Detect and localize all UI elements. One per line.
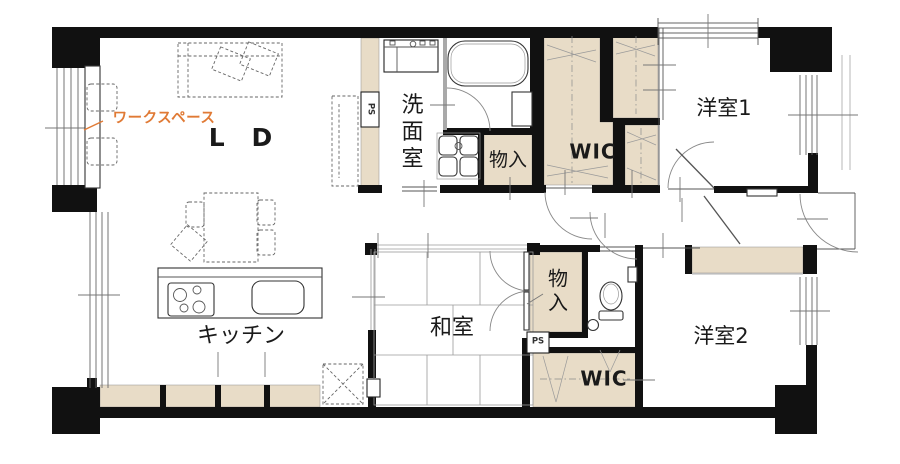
tv-board bbox=[332, 96, 358, 186]
meter-box bbox=[367, 379, 380, 397]
storage-fills bbox=[100, 33, 803, 407]
vanity-basin bbox=[437, 133, 480, 179]
label-washroom: 洗面室 bbox=[398, 93, 421, 174]
bathtub bbox=[448, 41, 532, 126]
label-living-dining: L D bbox=[209, 125, 281, 151]
bath-door-arc bbox=[447, 88, 490, 131]
refrigerator-space bbox=[323, 364, 363, 404]
wic-door-arc bbox=[545, 192, 592, 239]
dining-table bbox=[171, 193, 275, 262]
window-room1-top bbox=[658, 14, 758, 48]
label-wic-top: WIC bbox=[569, 142, 616, 163]
window-room1-right bbox=[788, 55, 858, 170]
kitchen-counter bbox=[158, 268, 322, 318]
window-room2-right bbox=[790, 277, 830, 345]
label-closet-top: 物入 bbox=[489, 151, 527, 171]
label-kitchen: キッチン bbox=[197, 324, 285, 347]
room1-door-leaf bbox=[676, 149, 714, 188]
toilet bbox=[588, 267, 638, 331]
floor-plan-drawing bbox=[0, 0, 900, 464]
washing-machine bbox=[384, 40, 438, 72]
entrance-door-arc bbox=[800, 194, 858, 252]
room2-door-leaf bbox=[704, 196, 740, 244]
floor-plan-page: L D キッチン 和室 洗面室 洋室1 洋室2 物入 物入 WIC WIC PS… bbox=[0, 0, 900, 464]
label-pipe-space-1: PS bbox=[366, 103, 375, 115]
label-workspace: ワークスペース bbox=[113, 111, 216, 126]
label-western-room-1: 洋室1 bbox=[696, 97, 751, 119]
walls bbox=[52, 27, 832, 434]
label-wic-bottom: WIC bbox=[580, 369, 627, 390]
label-closet-middle: 物入 bbox=[546, 268, 567, 316]
window-left-lower bbox=[78, 212, 120, 388]
furniture bbox=[87, 42, 363, 404]
sofa bbox=[178, 42, 282, 97]
label-western-room-2: 洋室2 bbox=[693, 325, 748, 347]
label-japanese-room: 和室 bbox=[430, 316, 474, 339]
label-pipe-space-2: PS bbox=[532, 338, 544, 347]
sink bbox=[252, 281, 304, 314]
